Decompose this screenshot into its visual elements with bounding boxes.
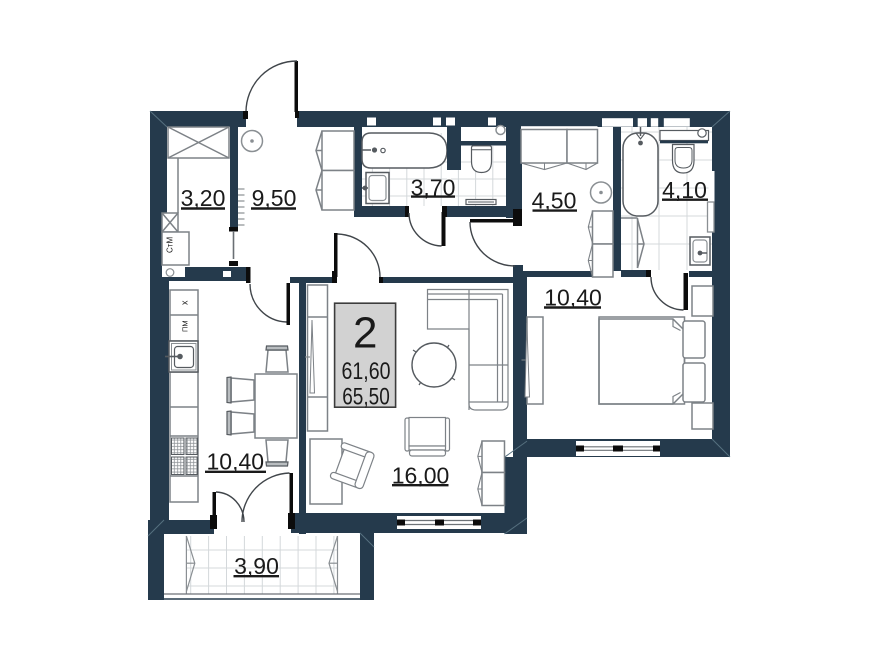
svg-text:61,60: 61,60 — [342, 358, 391, 385]
svg-text:СтМ: СтМ — [166, 237, 175, 253]
svg-text:3,20: 3,20 — [181, 185, 226, 211]
svg-text:65,50: 65,50 — [342, 384, 390, 411]
svg-text:x: x — [180, 300, 190, 305]
svg-text:9,50: 9,50 — [252, 185, 297, 211]
svg-text:ПМ: ПМ — [181, 320, 190, 332]
svg-text:2: 2 — [353, 308, 377, 357]
